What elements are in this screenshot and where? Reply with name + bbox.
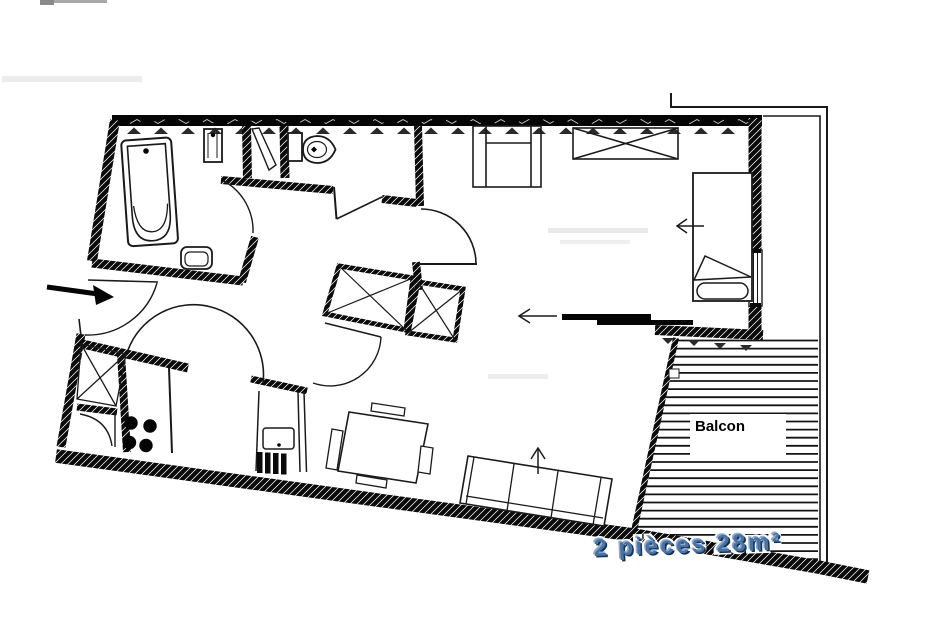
svg-text:Balcon: Balcon xyxy=(695,418,745,435)
